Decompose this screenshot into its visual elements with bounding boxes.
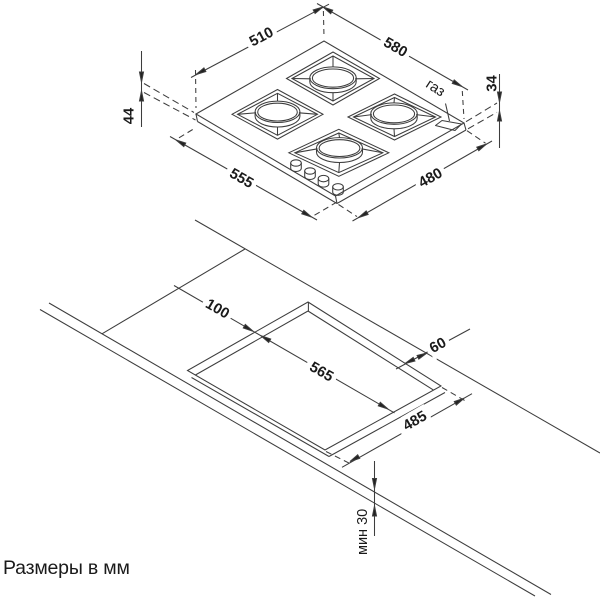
svg-text:Размеры в мм: Размеры в мм <box>3 557 130 579</box>
svg-text:34: 34 <box>485 75 501 92</box>
svg-text:44: 44 <box>122 107 138 124</box>
svg-text:мин 30: мин 30 <box>355 509 371 555</box>
